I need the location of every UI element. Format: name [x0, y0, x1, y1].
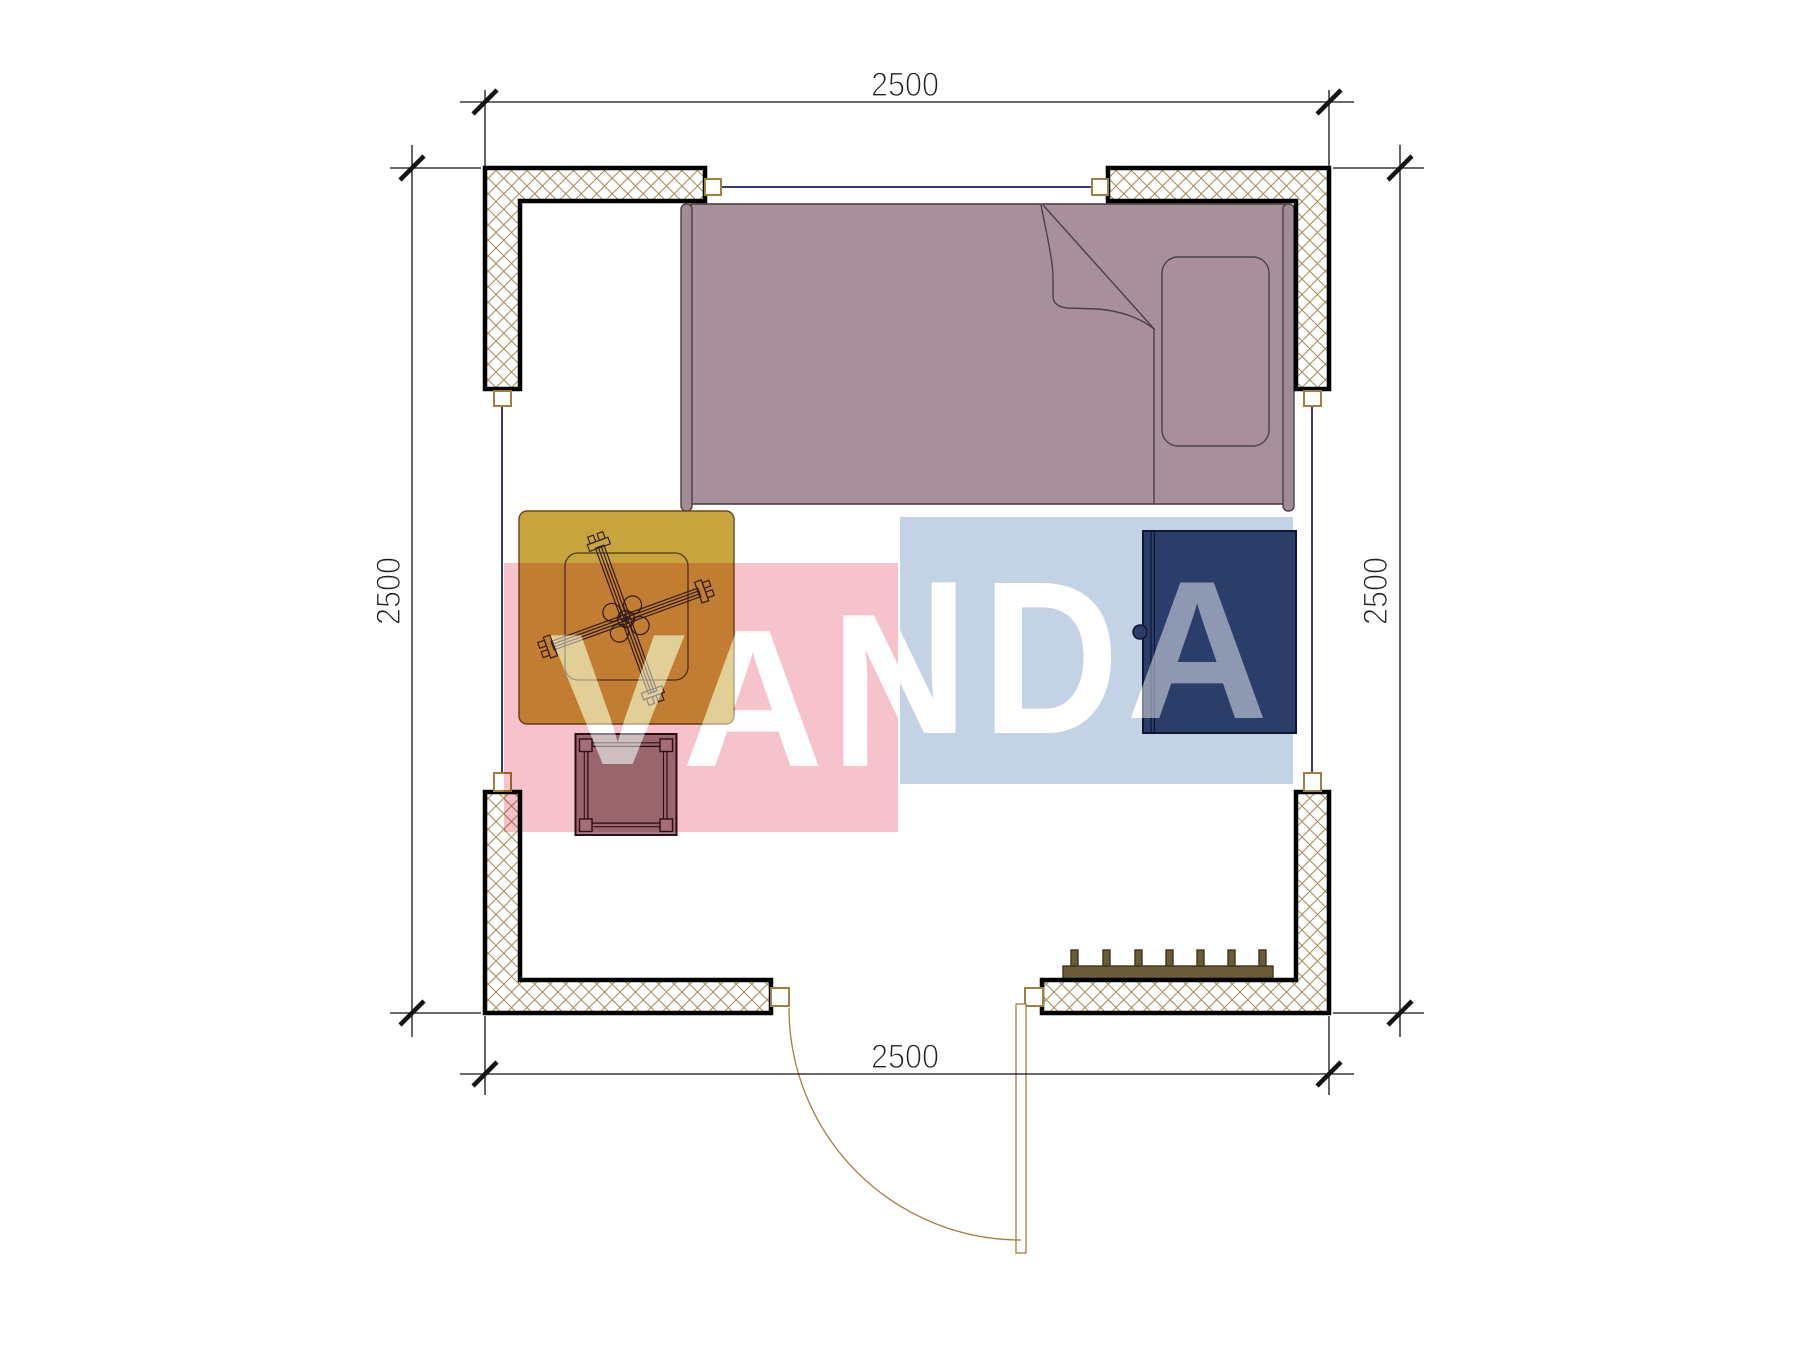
svg-text:D: D — [982, 537, 1119, 780]
svg-text:A: A — [1126, 540, 1268, 760]
svg-text:2500: 2500 — [370, 557, 408, 625]
svg-text:2500: 2500 — [871, 66, 939, 104]
svg-text:2500: 2500 — [871, 1038, 939, 1076]
svg-text:A: A — [682, 589, 824, 808]
svg-text:V: V — [549, 595, 686, 804]
svg-text:2500: 2500 — [1357, 557, 1395, 625]
